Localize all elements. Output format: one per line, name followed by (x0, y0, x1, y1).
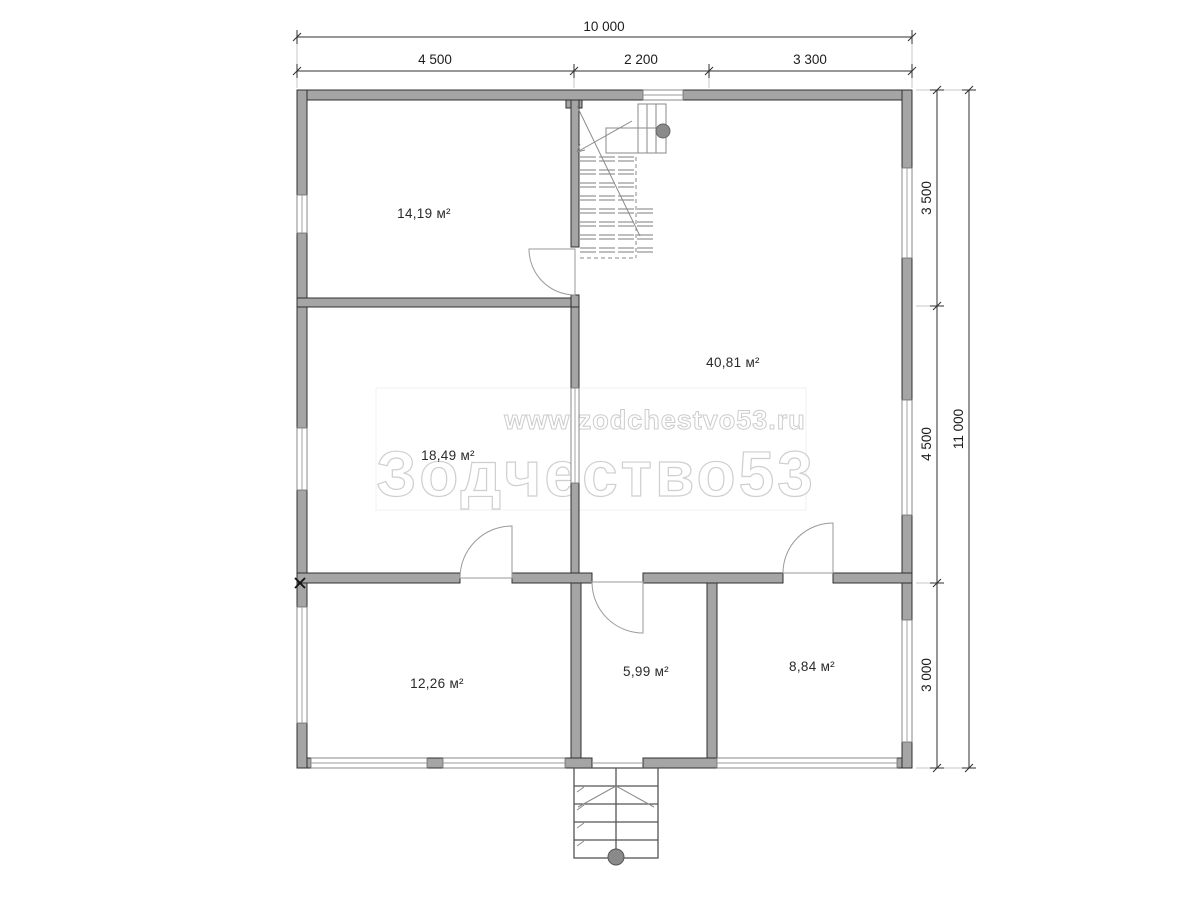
room-label: 8,84 м² (789, 659, 835, 674)
door-swing (783, 523, 833, 573)
dimension-right: 3 500 4 500 3 000 11 000 (916, 86, 976, 772)
stair-upper (577, 104, 670, 258)
dim-top-seg-2: 2 200 (624, 52, 658, 67)
watermark-url: www.zodchestvo53.ru (503, 405, 806, 435)
dim-right-seg-1: 3 500 (919, 181, 934, 215)
room-label: 40,81 м² (706, 355, 760, 370)
stair-direction-line (577, 106, 640, 236)
dim-top-total: 10 000 (583, 19, 624, 34)
dimension-top: 10 000 4 500 2 200 3 300 (293, 19, 916, 88)
room-label: 18,49 м² (421, 448, 475, 463)
door-swing (529, 249, 575, 295)
floorplan-drawing: www.zodchestvo53.ru Зодчество53 (0, 0, 1200, 900)
door-swing (460, 526, 512, 578)
floorplan-canvas: www.zodchestvo53.ru Зодчество53 (0, 0, 1200, 900)
dim-right-seg-3: 3 000 (919, 658, 934, 692)
dim-top-seg-3: 3 300 (793, 52, 827, 67)
doors (460, 249, 833, 816)
porch-post (608, 849, 624, 865)
stair-break-dashed (580, 157, 636, 258)
stair-treads (580, 157, 653, 252)
dim-right-seg-2: 4 500 (919, 427, 934, 461)
porch-stair (574, 768, 658, 865)
stair-post (656, 124, 670, 138)
room-label: 5,99 м² (623, 664, 669, 679)
dim-right-total: 11 000 (951, 409, 966, 449)
dim-top-seg-1: 4 500 (418, 52, 452, 67)
door-swing (592, 582, 643, 633)
room-label: 12,26 м² (410, 676, 464, 691)
room-label: 14,19 м² (397, 206, 451, 221)
